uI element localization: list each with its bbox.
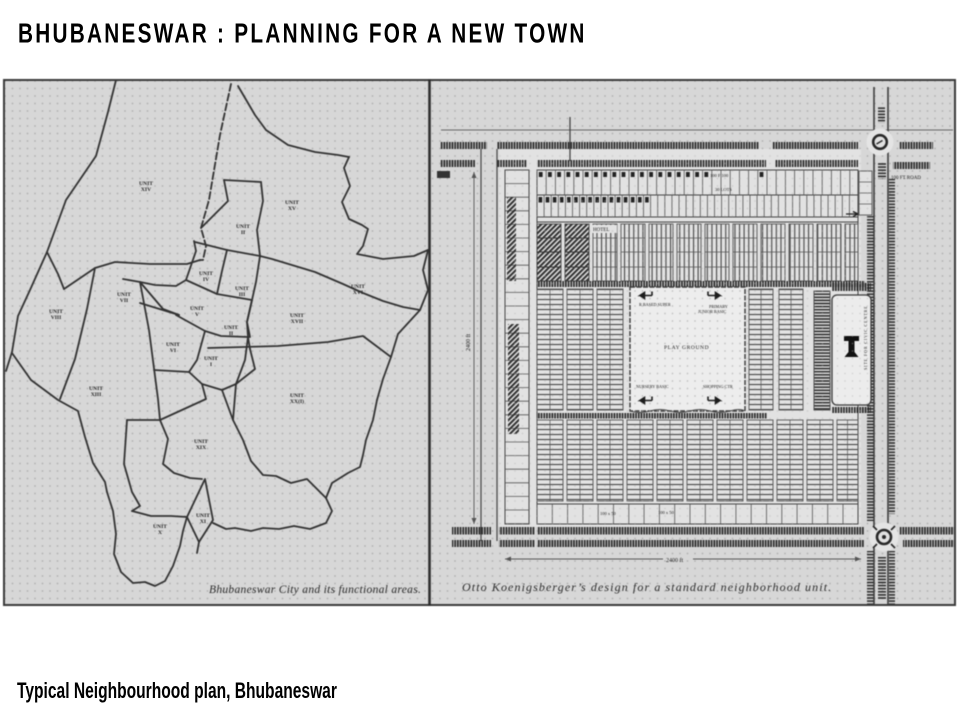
svg-text:XV: XV [288,206,296,212]
svg-text:II: II [241,230,245,236]
svg-text:XVI: XVI [353,290,363,296]
svg-text:XIII: XIII [91,392,102,398]
svg-text:VI: VI [170,348,176,354]
svg-text:XIV: XIV [141,187,151,193]
svg-text:100 FT ROAD: 100 FT ROAD [891,176,921,181]
svg-text:III: III [239,292,246,298]
svg-text:IV: IV [203,277,209,283]
svg-text:XVII: XVII [291,319,303,325]
svg-text:VIII: VIII [51,315,62,321]
svg-text:2400 ft: 2400 ft [465,334,472,351]
svg-text:I: I [210,362,212,368]
svg-text:XIX: XIX [196,445,206,451]
svg-text:Otto Koenigsberger’s design fo: Otto Koenigsberger’s design for a standa… [462,580,832,594]
svg-text:XX(I): XX(I) [290,398,304,405]
svg-text:X: X [158,530,162,536]
svg-text:VII: VII [120,298,128,304]
svg-text:V: V [195,312,199,318]
svg-text:II: II [229,331,233,337]
svg-text:Bhubaneswar City and its funct: Bhubaneswar City and its functional area… [209,584,421,596]
svg-text:2400 ft: 2400 ft [666,557,683,564]
svg-text:XI: XI [200,519,206,525]
